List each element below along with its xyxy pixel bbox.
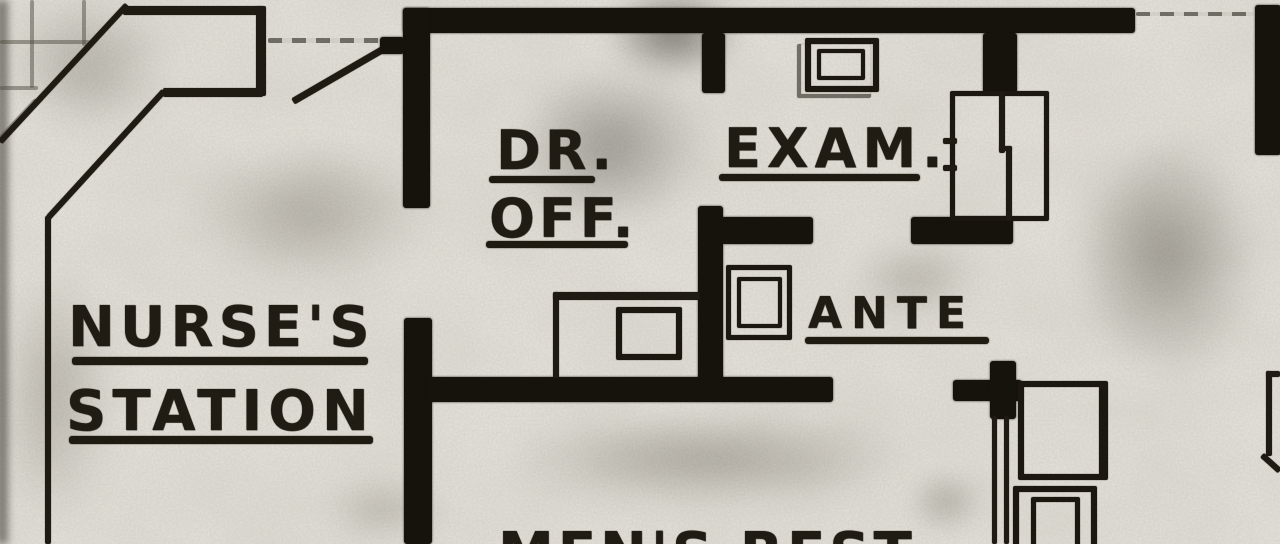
wall-left-lower [404,318,432,544]
pencil-grid-line [82,0,86,46]
nurse-station-wall [45,216,51,544]
wall-right [1255,5,1280,155]
window-square-ghost-stroke [797,44,871,98]
ante-room-underline [805,337,989,344]
right-edge-fixture-top [1266,371,1280,377]
entrance-outline-diagonal [46,89,166,220]
nurses-station-underline2 [69,436,373,444]
dr-office-underline1 [489,176,595,183]
scan-smudge [1035,85,1280,425]
door-leaf-divider [999,91,1005,153]
entrance-outline-mid [163,88,263,97]
exam-room-label: EXAM. [724,122,949,176]
floor-plan-scan: NURSE'S STATION DR. OFF. EXAM. ANTE MEN'… [0,0,1280,544]
wall-bottom [427,377,833,402]
dr-office-label-line2: OFF. [489,192,637,246]
ante-room-label: ANTE [808,292,975,336]
dr-office-underline2 [486,241,628,248]
wall-mid-upper-stub [702,33,725,93]
dr-office-label-line1: DR. [496,124,616,178]
bottom-room-label-clipped: MEN'S REST [498,526,916,544]
counter-top-edge [553,292,700,300]
counter-with-sink-symbol [616,307,682,360]
nurses-station-label-line1: NURSE'S [68,300,375,356]
ante-sink-symbol-inner [737,277,782,328]
scan-smudge [290,468,475,544]
partition-double-line [1004,416,1009,544]
wall-cross-vertical [990,361,1016,419]
scan-smudge [430,392,990,527]
nurses-station-label-line2: STATION [66,384,375,440]
wall-mid-vertical [698,206,723,381]
wall-left-upper [403,8,430,208]
leader-diagonal-line [291,43,390,104]
wall-exam-south-east [911,217,1013,244]
equipment-square-symbol [1018,381,1108,480]
entrance-outline-top [123,6,263,15]
counter-left-edge [553,292,559,378]
exam-room-underline [719,174,920,181]
door-leaf-divider-jog [999,146,1012,151]
wall-tee-stub [983,33,1017,93]
entrance-outline-right [256,6,266,96]
wall-stub-left [380,37,404,54]
door-leaf-divider [1006,146,1012,221]
wall-top [403,8,1135,33]
pencil-grid-line [30,0,34,88]
scan-edge-vignette [0,0,8,544]
right-edge-fixture-line [1266,371,1272,456]
pencil-grid-line [0,40,90,44]
wall-exam-south-west [721,217,813,244]
nested-cabinet-symbol-inner [1031,497,1080,544]
partition-double-line [992,416,997,544]
entrance-outline-diagonal [0,3,129,144]
door-swing-dashed-line [268,38,380,43]
nurses-station-underline1 [72,357,368,365]
door-opening-dashed-line [1136,12,1254,16]
